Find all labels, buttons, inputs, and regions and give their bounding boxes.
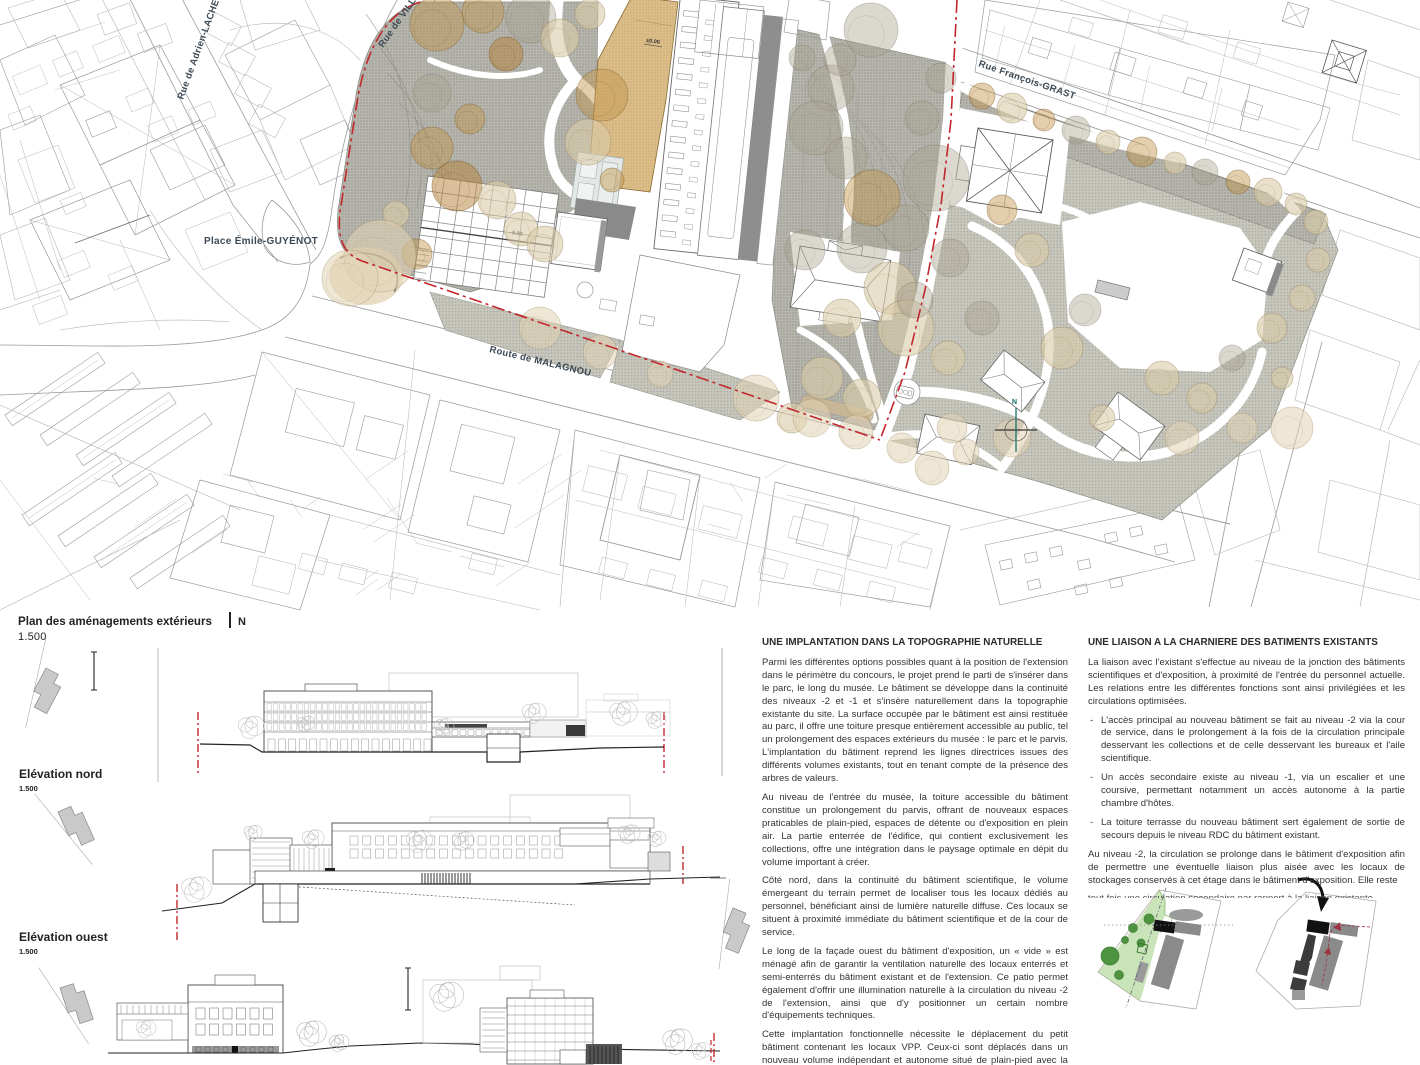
svg-text:Elévation nord: Elévation nord xyxy=(19,767,102,781)
svg-text:Elévation ouest: Elévation ouest xyxy=(19,930,108,944)
svg-text:1.500: 1.500 xyxy=(19,784,38,793)
svg-text:1.500: 1.500 xyxy=(19,947,38,956)
svg-text:N: N xyxy=(238,616,246,628)
svg-text:N: N xyxy=(1012,399,1017,406)
svg-text:1.500: 1.500 xyxy=(18,631,47,643)
svg-text:Place Émile-GUYÉNOT: Place Émile-GUYÉNOT xyxy=(204,234,318,247)
svg-text:Plan des aménagements extérieu: Plan des aménagements extérieurs xyxy=(18,615,212,628)
